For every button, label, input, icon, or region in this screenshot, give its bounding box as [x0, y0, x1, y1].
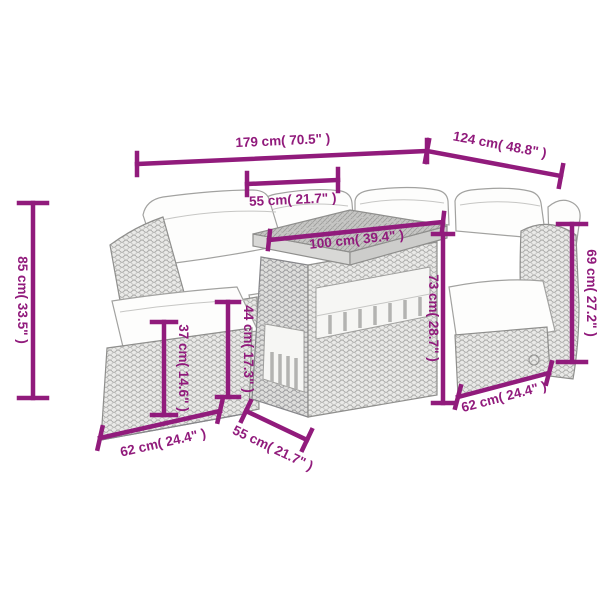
dim-total-width: 179 cm( 70.5" ) — [137, 131, 427, 175]
dim-total-depth-label: 124 cm( 48.8" ) — [452, 128, 548, 160]
diagram-canvas: 179 cm( 70.5" ) 124 cm( 48.8" ) 55 cm( 2… — [0, 0, 600, 600]
dim-seat-height-label: 44 cm( 17.3" ) — [241, 305, 256, 392]
dim-total-depth: 124 cm( 48.8" ) — [425, 128, 563, 186]
product-dimension-diagram: 179 cm( 70.5" ) 124 cm( 48.8" ) 55 cm( 2… — [0, 0, 600, 600]
dim-footstool-height-label: 37 cm( 14.6" ) — [176, 324, 191, 411]
dim-backrest-height-label: 69 cm( 27.2" ) — [584, 249, 599, 336]
right-sofa-section — [449, 224, 579, 396]
dim-table-height-label: 73 cm( 28.7" ) — [426, 274, 441, 361]
dim-total-height-label: 85 cm( 33.5" ) — [15, 256, 30, 343]
dim-total-width-label: 179 cm( 70.5" ) — [235, 131, 331, 150]
dim-total-height: 85 cm( 33.5" ) — [15, 203, 47, 398]
dim-seat-width-top: 55 cm( 21.7" ) — [247, 169, 338, 209]
